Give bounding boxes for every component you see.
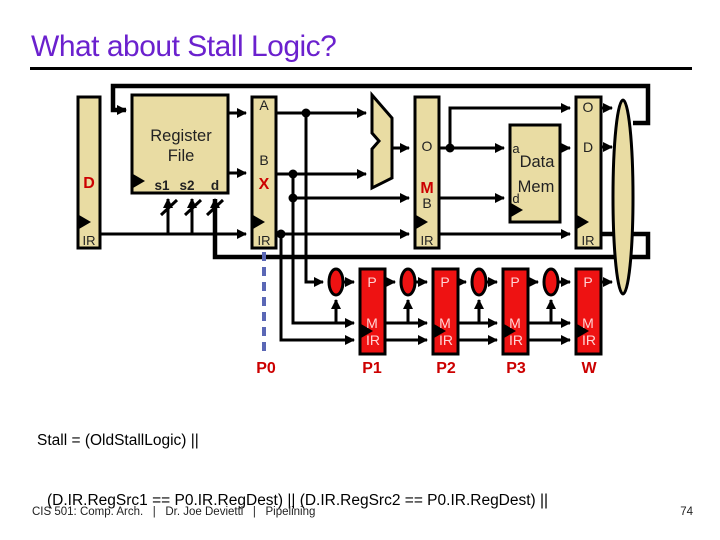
m-ir-label: IR [421,233,434,248]
footer-text: CIS 501: Comp. Arch. | Dr. Joe Devietti … [32,506,315,518]
alu-shape [372,95,392,188]
p2-port-ir: IR [439,332,453,348]
stage-label-p1: P1 [362,360,382,377]
data-mem-label-1: Data [520,153,556,171]
w-ir-label: IR [582,233,595,248]
register-file-label-2: File [168,147,195,165]
writeback-mux [613,100,633,294]
p3-port-m: M [509,315,521,331]
data-mem-label-2: Mem [518,178,555,196]
junction-dot [302,109,311,118]
p1-port-ir: IR [366,332,380,348]
stall-equation-line: Stall = (OldStallLogic) || [37,432,548,450]
junction-dot [289,194,298,203]
p1-port-p: P [367,274,376,290]
junction-dot [289,170,298,179]
x-stage-label: X [259,176,270,193]
dmem-port-d: d [512,191,519,206]
w-port-p: P [583,274,592,290]
junction-dot [277,230,286,239]
rf-port-s1: s1 [154,178,170,193]
d-stage-label: D [83,175,95,192]
p2-port-m: M [439,315,451,331]
x-port-a: A [259,97,269,113]
stage-label-p0: P0 [256,360,276,377]
stage-label-w: W [581,360,597,377]
p3-port-ir: IR [509,332,523,348]
page-number: 74 [680,506,693,518]
rf-port-d: d [211,178,219,193]
rf-port-s2: s2 [179,178,194,193]
p-mux-3 [472,269,486,295]
w-port-o: O [583,99,594,115]
w-port-ir: IR [582,332,596,348]
d-ir-label: IR [83,233,96,248]
x-port-b: B [259,152,268,168]
p3-port-p: P [510,274,519,290]
slide: What about Stall Logic? [0,0,720,540]
p2-port-p: P [440,274,449,290]
w-port-d: D [583,139,593,155]
m-port-o: O [422,138,433,154]
junction-dot [446,144,455,153]
stall-equation: Stall = (OldStallLogic) || (D.IR.RegSrc1… [37,396,548,540]
wire-b-down-to-m-row [293,174,354,323]
p-mux-2 [401,269,415,295]
p-mux-1 [329,269,343,295]
p-mux-4 [544,269,558,295]
x-ir-label: IR [258,233,271,248]
stage-label-p3: P3 [506,360,526,377]
m-port-b: B [422,195,431,211]
stage-label-p2: P2 [436,360,456,377]
p1-port-m: M [366,315,378,331]
w-port-m: M [582,315,594,331]
register-file-label-1: Register [150,127,212,145]
